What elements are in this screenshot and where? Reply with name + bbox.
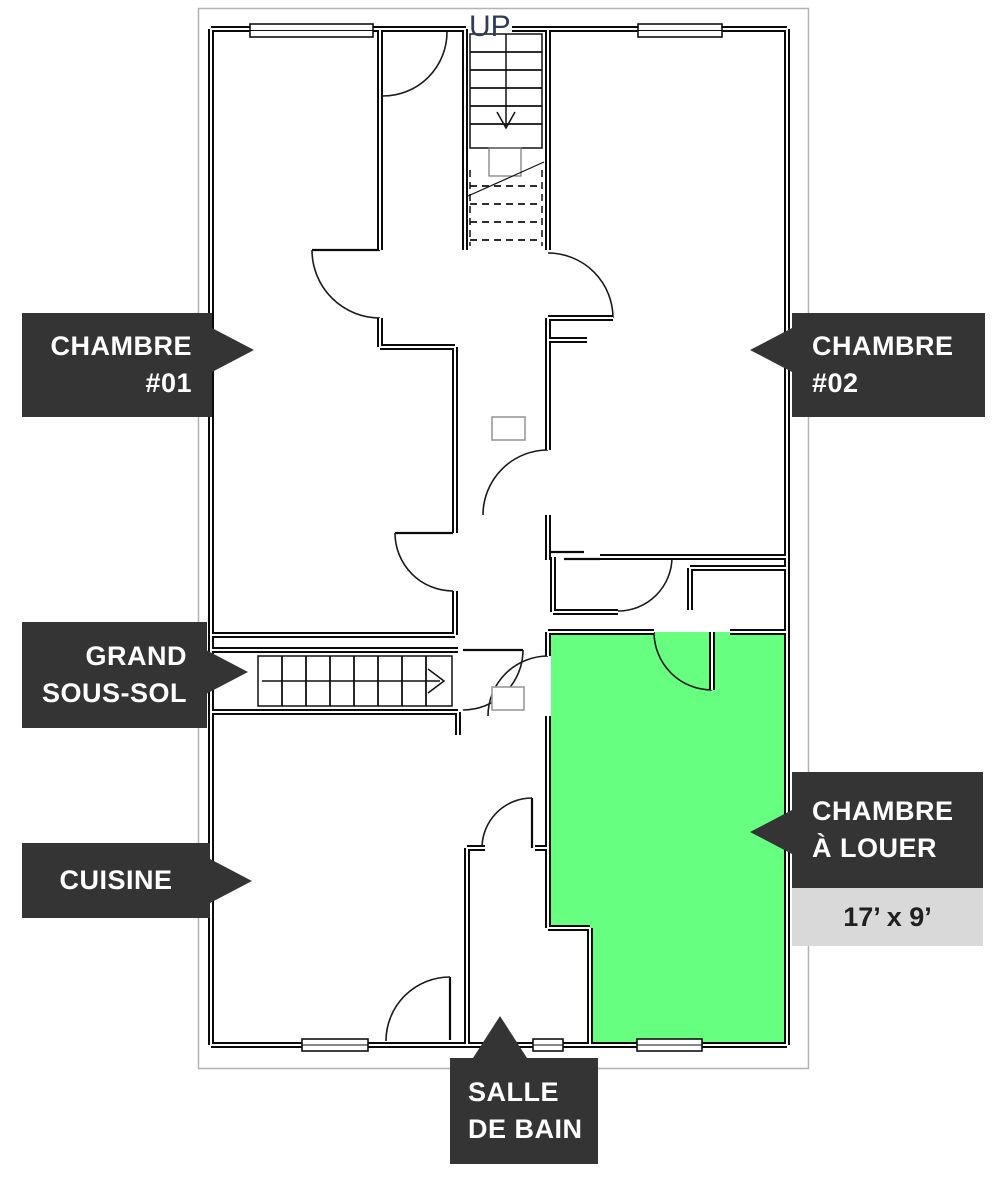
arrow-salle-de-bain xyxy=(473,1016,527,1058)
arrow-chambre-02 xyxy=(750,328,792,372)
arrow-chambre-01 xyxy=(212,328,254,372)
label-cuisine: CUISINE xyxy=(22,843,210,918)
arrow-chambre-a-louer xyxy=(750,810,792,854)
arrow-grand-sous-sol xyxy=(206,650,248,694)
label-chambre-01-line1: CHAMBRE xyxy=(22,328,192,365)
label-grand-sous-sol-line1: GRAND xyxy=(22,638,187,675)
label-chambre-a-louer-line1: CHAMBRE xyxy=(812,793,983,830)
arrow-cuisine xyxy=(210,859,252,903)
floor-plan: UP xyxy=(0,0,1000,1187)
label-grand-sous-sol: GRAND SOUS-SOL xyxy=(22,622,207,728)
label-salle-de-bain-line1: SALLE xyxy=(468,1074,598,1111)
label-salle-de-bain: SALLE DE BAIN xyxy=(450,1058,598,1164)
label-chambre-02-line2: #02 xyxy=(812,365,985,402)
label-chambre-01-line2: #01 xyxy=(22,365,192,402)
label-chambre-02-line1: CHAMBRE xyxy=(812,328,985,365)
room-size-tag: 17’ x 9’ xyxy=(792,888,983,946)
label-salle-de-bain-line2: DE BAIN xyxy=(468,1111,598,1148)
label-chambre-01: CHAMBRE #01 xyxy=(22,313,212,417)
label-chambre-02: CHAMBRE #02 xyxy=(792,313,985,417)
label-cuisine-line1: CUISINE xyxy=(22,862,210,899)
floor-plan-canvas: UP CHAMBRE #01 CHAMBRE #02 GRAND SOUS-SO… xyxy=(0,0,1000,1187)
stairs-up-label: UP xyxy=(469,10,511,43)
label-chambre-a-louer-line2: À LOUER xyxy=(812,830,983,867)
label-grand-sous-sol-line2: SOUS-SOL xyxy=(22,675,187,712)
label-chambre-a-louer: CHAMBRE À LOUER xyxy=(792,772,983,888)
